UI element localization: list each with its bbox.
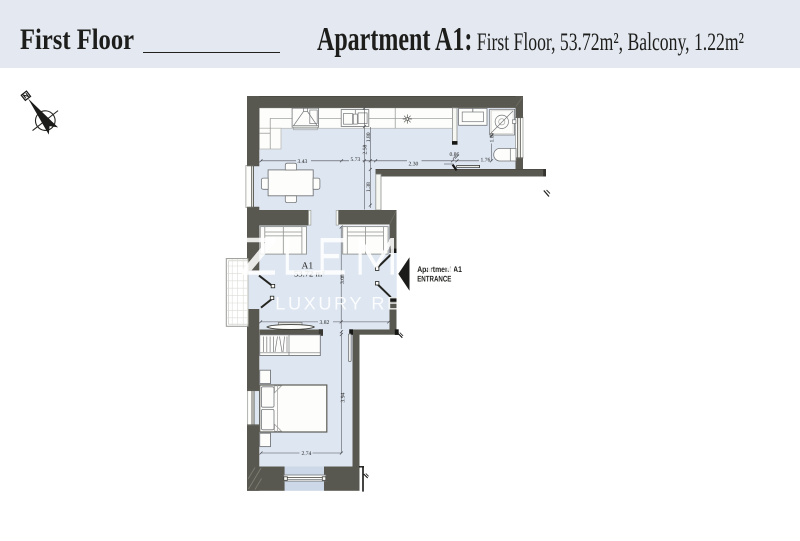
svg-text:2.74: 2.74 [302,451,312,457]
svg-text:2.30: 2.30 [409,161,419,167]
svg-text:1.80: 1.80 [489,133,495,143]
svg-text:1.76: 1.76 [481,158,491,164]
svg-text:1.80: 1.80 [366,132,372,142]
svg-text:2.58: 2.58 [363,145,369,155]
svg-text:ENTRANCE: ENTRANCE [417,275,452,284]
svg-text:3.94: 3.94 [340,393,346,403]
svg-text:3.08: 3.08 [340,274,346,284]
svg-text:Apartment A1: Apartment A1 [417,265,462,274]
svg-text:LUXURY RE: LUXURY RE [275,294,401,314]
svg-text:0.86: 0.86 [450,152,460,158]
svg-text:1.38: 1.38 [366,182,372,192]
svg-text:3.43: 3.43 [298,159,308,165]
svg-text:3.82: 3.82 [320,320,330,326]
svg-text:5.73: 5.73 [351,157,361,163]
